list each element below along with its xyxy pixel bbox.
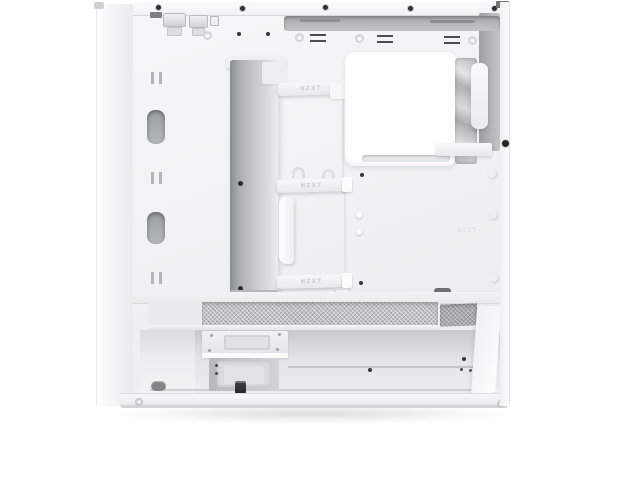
cable-strap-end bbox=[342, 273, 352, 288]
recess-slot bbox=[430, 20, 475, 23]
cable-strap-end bbox=[342, 177, 352, 192]
psu-bay-screw bbox=[462, 357, 466, 361]
top-frame bbox=[133, 2, 505, 16]
bracket-screw-hole bbox=[208, 349, 211, 352]
rear-mesh-vent bbox=[440, 303, 477, 326]
standoff-screw bbox=[359, 281, 363, 285]
usb-port-plug-1 bbox=[167, 27, 182, 36]
product-photo: NZXT NZXT NZXT NZXT bbox=[0, 0, 640, 480]
front-panel bbox=[96, 4, 134, 406]
cable-cutout-slit bbox=[151, 172, 162, 184]
fan-mount-hole bbox=[468, 36, 477, 45]
fan-mount-hole bbox=[203, 31, 212, 40]
fan-mount-slot bbox=[310, 34, 326, 42]
psu-shelf-line bbox=[288, 366, 478, 368]
rear-panel-rivet bbox=[489, 211, 497, 219]
case-drop-shadow bbox=[112, 406, 512, 422]
screw-dot bbox=[237, 32, 241, 36]
cable-cutout-slit bbox=[151, 272, 162, 284]
psu-compartment-front-light bbox=[140, 330, 195, 394]
standoff-screw bbox=[360, 173, 364, 177]
recess-slot bbox=[300, 19, 340, 22]
top-screw bbox=[408, 6, 413, 11]
rubber-foot-pill bbox=[151, 381, 166, 391]
rear-panel-rivet bbox=[488, 170, 496, 178]
panel-handle-slot bbox=[362, 155, 450, 162]
top-screw bbox=[323, 5, 328, 10]
cable-strap-bottom: NZXT bbox=[277, 274, 346, 289]
cable-tie-loop bbox=[292, 167, 305, 178]
psu-floor-line bbox=[150, 389, 480, 391]
cable-routing-hole bbox=[147, 212, 165, 244]
psu-shroud-mesh bbox=[202, 302, 438, 326]
top-screw bbox=[156, 5, 161, 10]
cage-screw bbox=[215, 372, 218, 375]
rear-panel-rivet bbox=[490, 274, 498, 282]
cage-screw bbox=[215, 364, 218, 367]
standoff-bump bbox=[356, 212, 362, 218]
cable-cutout-slit bbox=[151, 72, 162, 84]
usb-port-housing-1 bbox=[163, 13, 186, 27]
psu-bay-screw bbox=[368, 368, 372, 372]
cable-routing-hole bbox=[147, 110, 165, 144]
rear-thumbscrew bbox=[502, 140, 509, 147]
bracket-screw-hole bbox=[278, 333, 281, 336]
bottom-frame bbox=[120, 393, 508, 408]
fan-mount-shelf bbox=[436, 143, 492, 156]
nzxt-emboss: NZXT bbox=[450, 228, 484, 238]
psu-bay-screw bbox=[460, 368, 463, 371]
fan-corner-clip bbox=[471, 63, 488, 129]
cable-strap-top-label: NZXT bbox=[300, 85, 322, 92]
fan-mount-slot bbox=[377, 35, 393, 43]
screw-dot bbox=[266, 32, 270, 36]
bottom-corner-screw bbox=[135, 398, 143, 406]
psu-shroud-front bbox=[148, 302, 204, 326]
psu-bay-screw bbox=[469, 369, 472, 372]
cable-strap-middle: NZXT bbox=[277, 178, 346, 193]
cable-channel-step bbox=[262, 62, 287, 84]
rear-panel-strip bbox=[500, 2, 510, 406]
hdd-bracket-recess bbox=[224, 335, 270, 350]
cable-strap-bottom-label: NZXT bbox=[301, 278, 323, 285]
standoff-bump bbox=[356, 229, 362, 235]
nzxt-emboss-label: NZXT bbox=[457, 228, 477, 234]
bracket-screw-hole bbox=[276, 348, 279, 351]
front-io-connector-small bbox=[210, 16, 219, 26]
top-screw bbox=[240, 6, 245, 11]
cable-strap-middle-label: NZXT bbox=[301, 182, 323, 189]
usb-port-housing-2 bbox=[189, 15, 208, 28]
fan-mount-slot bbox=[444, 36, 460, 44]
front-panel-notch bbox=[94, 2, 104, 9]
front-io-cable bbox=[150, 12, 162, 18]
channel-screw bbox=[238, 181, 243, 186]
fan-mount-hole bbox=[295, 33, 304, 42]
bracket-screw-hole bbox=[210, 334, 213, 337]
fan-mount-hole bbox=[355, 34, 364, 43]
cable-guide-fin bbox=[279, 196, 294, 264]
